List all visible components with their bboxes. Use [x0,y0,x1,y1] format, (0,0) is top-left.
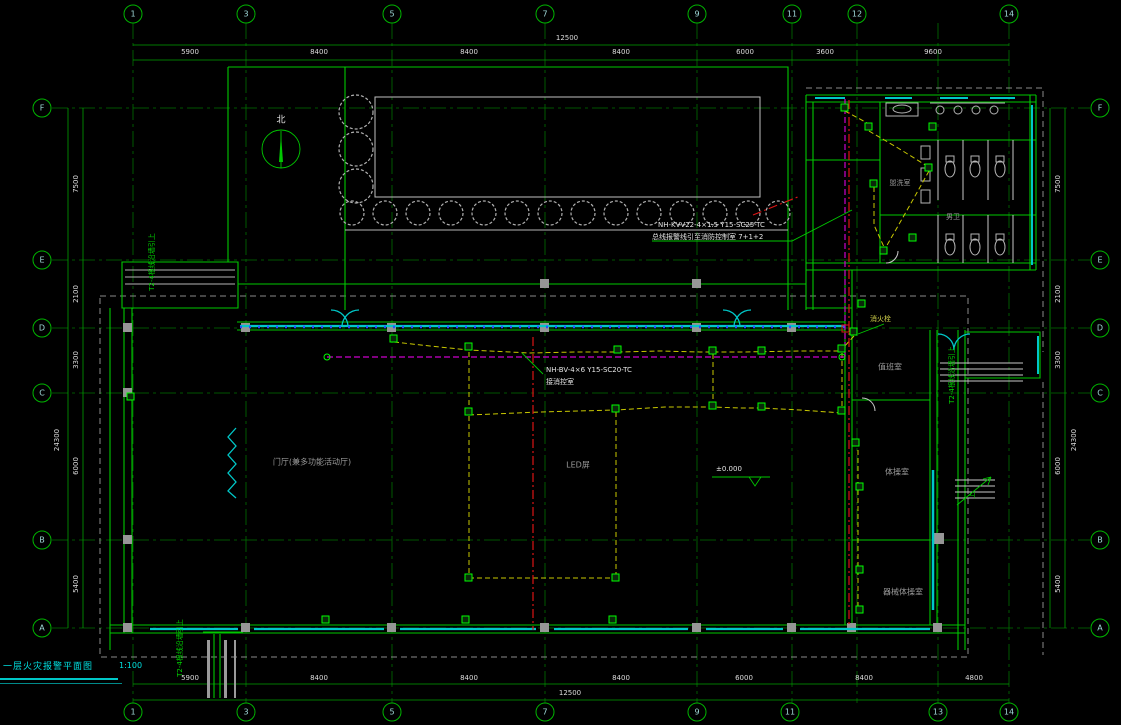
riser-note-left: T2-4根线沿墙引上 [147,233,157,291]
grid-bubble-left-E: E [33,251,52,270]
room-label-equipment: 器械体操室 [883,587,923,598]
wire-annotation-ctrl-line1: NH-BV-4×6 Y15-SC20-TC [546,366,632,374]
alarm-devices [127,104,936,623]
grid-bubble-bottom-14: 14 [1000,703,1019,722]
grid-bubble-left-A: A [33,619,52,638]
grid-bubble-right-A: A [1091,619,1110,638]
drawing-scale: 1:100 [119,661,142,670]
dim-left-F-E: 7500 [72,175,80,193]
grid-bubble-top-5: 5 [383,5,402,24]
dim-right-B-A: 5400 [1054,575,1062,593]
dim-top-mid: 12500 [556,34,578,42]
cad-drawing-canvas[interactable]: 1 3 5 7 9 11 12 14 1 3 5 7 9 11 13 14 F … [0,0,1121,725]
dim-left-C-B: 6000 [72,457,80,475]
grid-bubble-right-D: D [1091,319,1110,338]
control-wiring-magenta [327,98,845,357]
grid-bubble-top-7: 7 [536,5,555,24]
dim-top-7-9: 8400 [612,48,630,56]
grid-bubble-bottom-3: 3 [237,703,256,722]
dim-top-5-7: 8400 [460,48,478,56]
wire-annotation-ctrl-line2: 接消控室 [546,377,574,387]
stair-up-label: 上 [967,492,977,499]
dim-bottom-9-11: 6000 [735,674,753,682]
grid-bubble-top-14: 14 [1000,5,1019,24]
trees [339,95,790,225]
hydrant-label: 消火栓 [870,314,891,324]
wire-annotation-main-line2: 总线报警线引至消防控制室 7+1+2 [652,232,763,242]
grid-bubble-top-11: 11 [783,5,802,24]
dim-bottom-mid: 12500 [559,689,581,697]
room-label-mens-toilet: 男卫 [946,212,960,222]
grid-bubble-bottom-5: 5 [383,703,402,722]
elevation-label: ±0.000 [716,465,742,473]
grid-bubble-top-9: 9 [688,5,707,24]
drawing-title: 一层火灾报警平面图 [3,659,93,672]
grid-bubble-bottom-11: 11 [781,703,800,722]
title-underline-2 [0,683,122,684]
grid-bubble-bottom-9: 9 [688,703,707,722]
dim-top-11-12: 3600 [816,48,834,56]
grid-bubble-bottom-7: 7 [536,703,555,722]
dim-top-12-14: 9600 [924,48,942,56]
dim-bottom-3-5: 8400 [310,674,328,682]
grid-bubble-left-B: B [33,531,52,550]
dim-left-D-C: 3300 [72,351,80,369]
title-underline [0,678,118,680]
room-label-washroom: 盥洗室 [890,178,911,188]
grid-bubble-right-B: B [1091,531,1110,550]
grid-bubble-top-1: 1 [124,5,143,24]
dim-right-C-B: 6000 [1054,457,1062,475]
riser-note-right: T2-4根线沿墙引上 [947,346,957,404]
grid-bubble-top-12: 12 [848,5,867,24]
dim-right-total: 24300 [1070,429,1078,451]
room-label-led: LED屏 [566,460,590,471]
dim-bottom-7-9: 8400 [612,674,630,682]
dim-right-E-D: 2100 [1054,285,1062,303]
grid-bubble-bottom-1: 1 [124,703,143,722]
wire-annotation-main-line1: NH-KVV22-4×1.5 Y15-SC25-TC [658,221,765,229]
fixtures-gray [125,97,1023,698]
grid-bubble-top-3: 3 [237,5,256,24]
grid-bubble-bottom-13: 13 [929,703,948,722]
dim-left-total: 24300 [53,429,61,451]
dim-top-3-5: 8400 [310,48,328,56]
grid-bubble-right-C: C [1091,384,1110,403]
dim-left-E-D: 2100 [72,285,80,303]
dim-bottom-11-13: 8400 [855,674,873,682]
grid-bubble-left-D: D [33,319,52,338]
room-label-hall: 门厅(兼多功能活动厅) [273,457,351,468]
dim-top-1-3: 5900 [181,48,199,56]
walls [110,67,1040,698]
dim-top-9-11: 6000 [736,48,754,56]
room-label-duty: 值班室 [878,362,902,373]
riser-note-bottom: T2-4根线沿墙引上 [175,619,185,677]
dim-left-B-A: 5400 [72,575,80,593]
room-label-gym: 体操室 [885,467,909,478]
grid-bubble-left-F: F [33,99,52,118]
riser-lines-red [533,100,849,630]
grid-bubble-left-C: C [33,384,52,403]
dim-bottom-13-14: 4800 [965,674,983,682]
grid-bubble-right-E: E [1091,251,1110,270]
dim-bottom-5-7: 8400 [460,674,478,682]
north-label: 北 [276,113,285,126]
dim-right-D-C: 3300 [1054,351,1062,369]
dim-right-F-E: 7500 [1054,175,1062,193]
grid-bubble-right-F: F [1091,99,1110,118]
